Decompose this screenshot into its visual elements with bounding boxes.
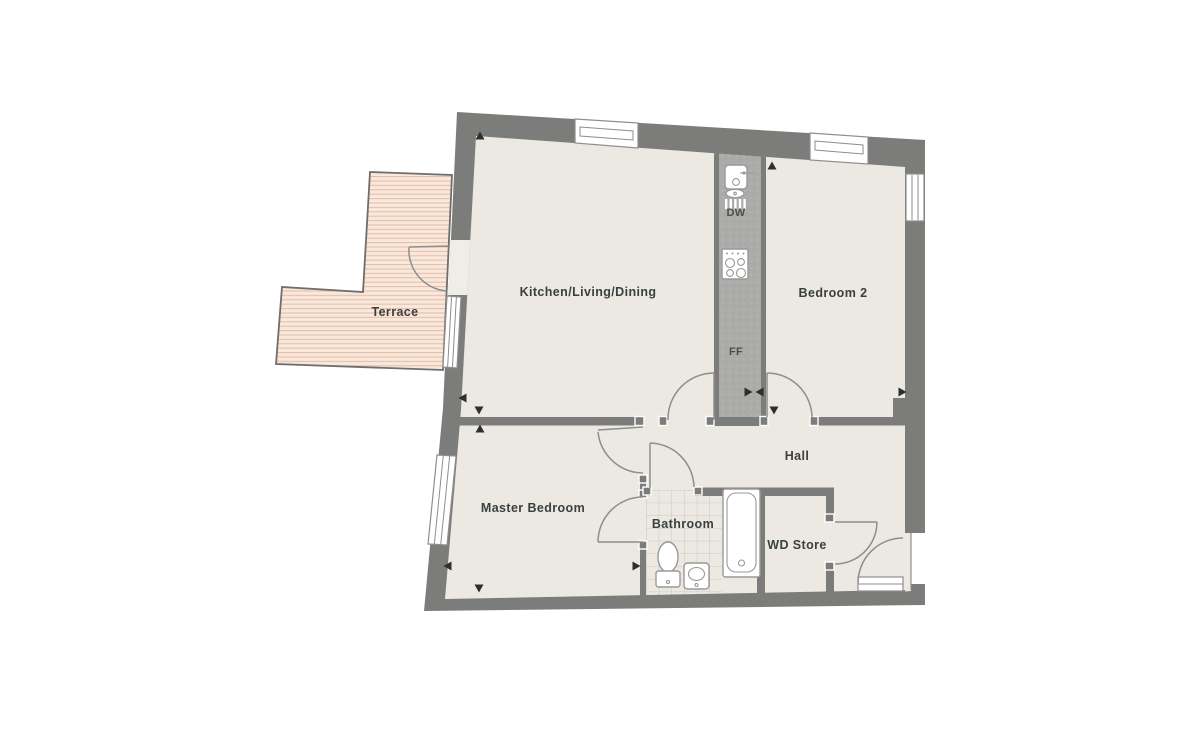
window-bedroom2-top — [810, 133, 868, 164]
dishwasher-label: DW — [727, 207, 746, 219]
door-jamb — [639, 475, 647, 483]
door-jamb — [760, 417, 768, 426]
door-jamb — [694, 487, 702, 495]
toilet-icon — [656, 542, 680, 587]
room-label-bathroom: Bathroom — [652, 517, 714, 531]
window-kld-top — [575, 119, 638, 148]
hob-icon — [722, 249, 748, 279]
entrance-recess — [910, 533, 926, 584]
room-label-hall: Hall — [785, 449, 810, 463]
entrance-threshold — [858, 577, 903, 591]
floor-plan-page: DW FF — [0, 0, 1200, 733]
room-label-wd-store: WD Store — [767, 538, 826, 552]
window-bedroom2-right — [906, 174, 924, 221]
room-label-terrace: Terrace — [371, 305, 418, 319]
room-label-master-bedroom: Master Bedroom — [481, 501, 585, 515]
basin-icon — [684, 563, 709, 589]
kitchen-strip: DW FF — [714, 153, 766, 417]
room-label-kitchen-living-dining: Kitchen/Living/Dining — [520, 285, 657, 299]
door-jamb — [706, 417, 714, 426]
door-jamb — [810, 417, 818, 426]
wall-kld-master — [459, 417, 635, 426]
door-jamb — [659, 417, 667, 426]
wall-hall-bedroom2 — [818, 417, 893, 426]
entrance-nook-floor — [905, 533, 911, 592]
floor-plan-svg: DW FF — [0, 0, 1200, 733]
terrace-door-opening — [448, 240, 470, 295]
door-jamb — [635, 417, 644, 426]
door-jamb — [825, 514, 834, 522]
wall-bedroom2-corner — [893, 398, 905, 426]
fridge-freezer-label: FF — [729, 346, 743, 358]
door-jamb — [825, 562, 834, 570]
door-jamb — [643, 487, 651, 495]
wall-strip-base — [713, 417, 766, 426]
bathtub-icon — [723, 489, 760, 577]
room-label-bedroom2: Bedroom 2 — [799, 286, 868, 300]
